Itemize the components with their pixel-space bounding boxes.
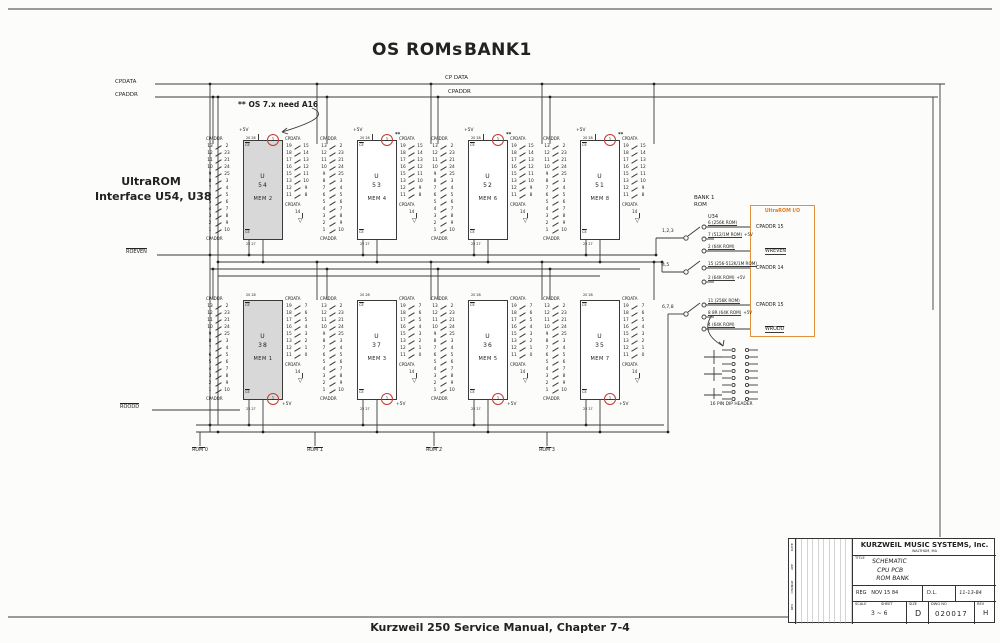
data-pin-row: 186 bbox=[621, 311, 658, 318]
data-pin-row: 1814 bbox=[509, 151, 546, 158]
bus-tap-mark bbox=[215, 375, 221, 380]
bus-tap-mark bbox=[294, 347, 300, 352]
cpdata-label-top: CPDATA bbox=[399, 296, 415, 301]
ultrarom-note-line2: Interface U54, U38 bbox=[95, 190, 207, 205]
vcc-label: +5V bbox=[619, 402, 628, 407]
bus-tap-mark bbox=[215, 173, 221, 178]
addr-pin-number: 7 bbox=[336, 368, 346, 372]
data-pin-number: 11 bbox=[284, 194, 294, 198]
junction-dot bbox=[487, 431, 490, 434]
data-pin-number: 16 bbox=[284, 166, 294, 170]
addr-pin-row: 132 bbox=[542, 144, 580, 151]
addr-pin-number: 6 bbox=[447, 361, 457, 365]
sheet-value: 3 ~ 6 bbox=[871, 610, 887, 617]
data-pin-number: 13 bbox=[398, 340, 408, 344]
addr-pin-number: 21 bbox=[559, 159, 569, 163]
data-bus-bit: 7 bbox=[415, 305, 425, 309]
bus-tap-mark bbox=[329, 361, 335, 366]
addr-pin-row: 83 bbox=[319, 339, 357, 346]
addr-bus-bit: 8 bbox=[430, 180, 440, 184]
drawn-date: NOV 15 84 bbox=[871, 590, 898, 596]
data-pin-row: 118 bbox=[284, 193, 321, 200]
addr-pin-number: 3 bbox=[336, 340, 346, 344]
bus-tap-mark bbox=[552, 201, 558, 206]
addr-pin-row: 1223 bbox=[319, 311, 357, 318]
addr-pin-number: 3 bbox=[447, 340, 457, 344]
data-bus-bit: 13 bbox=[301, 159, 311, 163]
addr-bus-bit: 3 bbox=[205, 215, 215, 219]
addr-pin-row: 1024 bbox=[430, 325, 468, 332]
bus-tap-mark bbox=[294, 173, 300, 178]
data-bus-bit: 4 bbox=[415, 326, 425, 330]
addr-pin-row: 29 bbox=[319, 381, 357, 388]
data-pin-row: 1310 bbox=[284, 179, 321, 186]
addr-bus-bit: 1 bbox=[319, 229, 329, 233]
cpdata-label-bottom: CPDATA bbox=[399, 362, 415, 367]
addr-bus-bit: 11 bbox=[542, 159, 552, 163]
bus-tap-mark bbox=[552, 222, 558, 227]
data-pin-number: 15 bbox=[284, 173, 294, 177]
chip-bottom-pin-numbers: 22 27 bbox=[471, 407, 481, 411]
chip-designator: U37MEM 3 bbox=[357, 332, 397, 364]
data-pin-row: 118 bbox=[509, 193, 546, 200]
chip-ref: U bbox=[580, 332, 620, 341]
cpdata-label-bottom: CPDATA bbox=[510, 362, 526, 367]
addr-bus-bit: 10 bbox=[542, 166, 552, 170]
data-bus-bit: 2 bbox=[301, 340, 311, 344]
addr-pin-row: 132 bbox=[542, 304, 580, 311]
data-bus-bit: 4 bbox=[526, 326, 536, 330]
bus-tap-mark bbox=[552, 215, 558, 220]
chip-designator: U51MEM 8 bbox=[580, 172, 620, 204]
ce-pin-label: CE bbox=[470, 303, 475, 307]
data-pin-number: 18 bbox=[398, 152, 408, 156]
addr-bus-bit: 10 bbox=[319, 166, 329, 170]
cpdata-label-top: CPDATA bbox=[399, 136, 415, 141]
data-pin-number: 11 bbox=[621, 354, 631, 358]
addr-bus-bit: 6 bbox=[319, 194, 329, 198]
chip-top-pin-numbers: 20 28 bbox=[583, 293, 593, 297]
chip-ref: U bbox=[580, 172, 620, 181]
chip-num: 54 bbox=[243, 181, 283, 190]
bus-tap-mark bbox=[552, 187, 558, 192]
addr-pin-column: 13212231121102492583746556473829110 bbox=[430, 144, 468, 235]
addr-pin-row: 925 bbox=[430, 332, 468, 339]
data-bus-bit: 7 bbox=[638, 305, 648, 309]
data-pin-number: 13 bbox=[621, 180, 631, 184]
bus-tap-mark bbox=[215, 368, 221, 373]
bus-tap-mark bbox=[631, 180, 637, 185]
bus-tap-mark bbox=[329, 180, 335, 185]
rom-chip-U53: CECEU53MEM 4CPADDRCPADDR1321223112110249… bbox=[319, 128, 435, 258]
drawing-title-line3: ROM BANK bbox=[876, 575, 910, 584]
bus-tap-mark bbox=[440, 361, 446, 366]
bus-tap-mark bbox=[552, 368, 558, 373]
ultrarom-io-title: UltraROM I/O bbox=[751, 209, 814, 214]
addr-pin-number: 6 bbox=[559, 201, 569, 205]
data-bus-bit: 8 bbox=[526, 194, 536, 198]
bus-tap-mark bbox=[294, 333, 300, 338]
addr-bus-bit: 9 bbox=[430, 333, 440, 337]
bus-tap-mark bbox=[552, 326, 558, 331]
addr-pin-number: 23 bbox=[559, 152, 569, 156]
ground-icon: ▽ bbox=[412, 377, 417, 384]
addr-bus-bit: 12 bbox=[319, 152, 329, 156]
data-pin-number: 13 bbox=[284, 340, 294, 344]
data-pin-row: 110 bbox=[509, 353, 546, 360]
data-bus-bit: 11 bbox=[415, 173, 425, 177]
data-pin-column: 191518141713161215111310129118 bbox=[509, 144, 546, 200]
bus-tap-mark bbox=[408, 159, 414, 164]
addr-pin-number: 5 bbox=[559, 354, 569, 358]
bus-tap-mark bbox=[552, 159, 558, 164]
bus-tap-mark bbox=[519, 145, 525, 150]
addr-pin-number: 4 bbox=[447, 187, 457, 191]
chip-mem: MEM 1 bbox=[243, 356, 283, 364]
addr-bus-bit: 10 bbox=[430, 326, 440, 330]
bus-tap-mark bbox=[329, 375, 335, 380]
addr-pin-row: 47 bbox=[542, 207, 580, 214]
addr-pin-row: 132 bbox=[430, 144, 468, 151]
addr-pin-number: 8 bbox=[447, 375, 457, 379]
bus-tap-mark bbox=[408, 340, 414, 345]
bus-tap-mark bbox=[440, 368, 446, 373]
addr-pin-row: 29 bbox=[430, 381, 468, 388]
addr-bus-bit: 8 bbox=[205, 340, 215, 344]
addr-bus-bit: 13 bbox=[430, 305, 440, 309]
junction-dot bbox=[217, 431, 220, 434]
wire bbox=[688, 303, 700, 312]
addr-bus-bit: 7 bbox=[319, 187, 329, 191]
chip-num: 35 bbox=[580, 341, 620, 350]
page-title-left: OS ROMs bbox=[372, 40, 463, 60]
data-bus-bit: 3 bbox=[638, 333, 648, 337]
wire bbox=[688, 261, 700, 270]
data-pin-row: 153 bbox=[284, 332, 321, 339]
data-bus-bit: 13 bbox=[526, 159, 536, 163]
dip-pin-circle bbox=[745, 390, 748, 393]
chip-designator: U38MEM 1 bbox=[243, 332, 283, 364]
addr-bus-bit: 4 bbox=[430, 368, 440, 372]
bus-tap-mark bbox=[440, 194, 446, 199]
addr-pin-number: 5 bbox=[222, 354, 232, 358]
bus-tap-mark bbox=[408, 312, 414, 317]
addr-pin-row: 1121 bbox=[205, 158, 243, 165]
data-pin-row: 1612 bbox=[621, 165, 658, 172]
company-location: WALTHAM, MA bbox=[853, 549, 996, 553]
addr-pin-row: 110 bbox=[430, 388, 468, 395]
addr-pin-number: 8 bbox=[559, 215, 569, 219]
addr-pin-number: 21 bbox=[559, 319, 569, 323]
bus-tap-mark bbox=[440, 312, 446, 317]
bus-tap-mark bbox=[294, 194, 300, 199]
bus-tap-mark bbox=[440, 152, 446, 157]
addr-bus-bit: 10 bbox=[319, 326, 329, 330]
addr-pin-row: 132 bbox=[319, 304, 357, 311]
data-bus-bit: 10 bbox=[526, 180, 536, 184]
data-pin-row: 153 bbox=[621, 332, 658, 339]
vcc-label: +5V bbox=[507, 402, 516, 407]
data-pin-number: 18 bbox=[284, 312, 294, 316]
bus-tap-mark bbox=[215, 208, 221, 213]
bus-tap-mark bbox=[215, 159, 221, 164]
bus-tap-mark bbox=[440, 166, 446, 171]
addr-bus-bit: 6 bbox=[542, 354, 552, 358]
data-pin-row: 197 bbox=[284, 304, 321, 311]
bus-tap-mark bbox=[519, 347, 525, 352]
bus-tap-mark bbox=[552, 145, 558, 150]
addr-bus-bit: 6 bbox=[542, 194, 552, 198]
bus-tap-mark bbox=[329, 305, 335, 310]
ultrarom-note-line1: UltraROM bbox=[95, 175, 207, 190]
data-bus-bit: 11 bbox=[638, 173, 648, 177]
dip-pin-circle bbox=[732, 397, 735, 400]
addr-pin-number: 25 bbox=[336, 333, 346, 337]
bank1-label-line1: BANK 1 bbox=[694, 195, 715, 201]
data-pin-number: 16 bbox=[284, 326, 294, 330]
jumper-option-label: 8 8R (64K ROM)+5V bbox=[708, 311, 752, 315]
addr-bus-bit: 1 bbox=[319, 389, 329, 393]
bus-tap-mark bbox=[294, 340, 300, 345]
vcc-label: +5V bbox=[396, 402, 405, 407]
bus-tap-mark bbox=[215, 326, 221, 331]
jumper-pins-label: 1,2,3 bbox=[662, 229, 674, 234]
data-bus-bit: 4 bbox=[301, 326, 311, 330]
switch-pin-circle bbox=[702, 249, 706, 253]
addr-pin-number: 8 bbox=[336, 375, 346, 379]
addr-bus-bit: 12 bbox=[205, 152, 215, 156]
data-pin-row: 153 bbox=[509, 332, 546, 339]
addr-pin-row: 38 bbox=[319, 374, 357, 381]
bus-tap-mark bbox=[631, 145, 637, 150]
data-pin-row: 1612 bbox=[284, 165, 321, 172]
jumper-option-text: 8 8R (64K ROM) bbox=[708, 310, 741, 316]
addr-pin-number: 4 bbox=[222, 187, 232, 191]
ultrarom-io-box: UltraROM I/O CPADDR 15WREVENCPADDR 14CPA… bbox=[750, 205, 815, 337]
drawn-by: REG bbox=[856, 590, 867, 596]
addr-bus-bit: 6 bbox=[430, 194, 440, 198]
addr-pin-column: 13212231121102492583746556473829110 bbox=[319, 304, 357, 395]
addr-pin-number: 10 bbox=[222, 229, 232, 233]
junction-dot bbox=[326, 96, 329, 99]
chip-ref: U bbox=[468, 332, 508, 341]
vpp-stars: ** bbox=[395, 132, 400, 138]
ground-icon: ▽ bbox=[635, 217, 640, 224]
data-bus-bit: 8 bbox=[415, 194, 425, 198]
rom-chip-U37: CECEU37MEM 3CPADDRCPADDR1321223112110249… bbox=[319, 288, 435, 418]
cpdata-label-top: CPDATA bbox=[622, 136, 638, 141]
bus-tap-mark bbox=[440, 201, 446, 206]
data-pin-row: 132 bbox=[509, 339, 546, 346]
cpaddr-label-top: CPADDR bbox=[206, 296, 223, 301]
addr-bus-bit: 4 bbox=[430, 208, 440, 212]
revision-strip-label: APP bbox=[790, 559, 794, 575]
chip-num: 53 bbox=[357, 181, 397, 190]
data-bus-bit: 15 bbox=[415, 145, 425, 149]
bus-tap-mark bbox=[440, 229, 446, 234]
bus-tap-mark bbox=[552, 354, 558, 359]
addr-bus-bit: 5 bbox=[430, 201, 440, 205]
data-pin-number: 19 bbox=[398, 305, 408, 309]
chip-ref: U bbox=[357, 332, 397, 341]
jumper-pins-label: 4,5 bbox=[662, 263, 669, 268]
addr-pin-row: 56 bbox=[430, 200, 468, 207]
vcc-label: +5V bbox=[464, 128, 473, 133]
rom-chip-U35: CECEU35MEM 7CPADDRCPADDR1321223112110249… bbox=[542, 288, 658, 418]
chip-num: 52 bbox=[468, 181, 508, 190]
data-pin-number: 18 bbox=[621, 312, 631, 316]
cpaddr-label-bottom: CPADDR bbox=[431, 396, 448, 401]
addr-bus-bit: 2 bbox=[319, 222, 329, 226]
data-bus-bit: 10 bbox=[415, 180, 425, 184]
addr-bus-bit: 5 bbox=[430, 361, 440, 365]
junction-dot bbox=[549, 96, 552, 99]
bus-tap-mark bbox=[408, 333, 414, 338]
bus-tap-mark bbox=[329, 319, 335, 324]
chip-num: 51 bbox=[580, 181, 620, 190]
addr-pin-row: 47 bbox=[205, 367, 243, 374]
data-pin-number: 19 bbox=[398, 145, 408, 149]
gnd-pin-number: 14 bbox=[632, 369, 637, 374]
ce-pin-label: CE bbox=[470, 143, 475, 147]
bus-tap-mark bbox=[294, 187, 300, 192]
addr-bus-bit: 6 bbox=[205, 354, 215, 358]
dip-pin-circle bbox=[732, 383, 735, 386]
addr-pin-row: 1121 bbox=[319, 318, 357, 325]
data-pin-number: 12 bbox=[284, 187, 294, 191]
addr-pin-row: 1024 bbox=[542, 325, 580, 332]
addr-bus-bit: 13 bbox=[205, 305, 215, 309]
addr-pin-number: 4 bbox=[336, 187, 346, 191]
bus-tap-mark bbox=[294, 159, 300, 164]
data-pin-number: 15 bbox=[398, 173, 408, 177]
dip-pin-circle bbox=[745, 348, 748, 351]
data-bus-bit: 5 bbox=[638, 319, 648, 323]
size-value: D bbox=[915, 609, 921, 618]
cpaddr-label-bottom: CPADDR bbox=[431, 236, 448, 241]
bus-tap-mark bbox=[329, 201, 335, 206]
vpp-highlight-circle: 1 bbox=[381, 134, 393, 146]
addr-pin-row: 1024 bbox=[542, 165, 580, 172]
data-bus-bit: 6 bbox=[415, 312, 425, 316]
bus-tap-mark bbox=[215, 340, 221, 345]
bus-tap-mark bbox=[408, 187, 414, 192]
junction-dot bbox=[437, 268, 440, 271]
addr-bus-bit: 13 bbox=[430, 145, 440, 149]
bank1-label-line2: ROM bbox=[694, 202, 707, 208]
addr-pin-row: 29 bbox=[205, 381, 243, 388]
bus-tap-mark bbox=[519, 166, 525, 171]
data-pin-number: 12 bbox=[284, 347, 294, 351]
addr-pin-row: 1024 bbox=[430, 165, 468, 172]
drawing-title-line2: CPU PCB bbox=[877, 567, 911, 576]
data-pin-row: 121 bbox=[621, 346, 658, 353]
vpp-stars: ** bbox=[618, 132, 623, 138]
cpaddr-label-bottom: CPADDR bbox=[320, 236, 337, 241]
addr-pin-number: 24 bbox=[447, 326, 457, 330]
page-caption: Kurzweil 250 Service Manual, Chapter 7-4 bbox=[0, 621, 1000, 634]
chip-top-pin-numbers: 20 28 bbox=[360, 293, 370, 297]
addr-pin-row: 29 bbox=[205, 221, 243, 228]
jumper-pins-label: 6,7,8 bbox=[662, 305, 674, 310]
ce-pin-label: CE bbox=[359, 143, 364, 147]
chip-bottom-pin-numbers: 22 27 bbox=[471, 242, 481, 246]
addr-pin-row: 110 bbox=[205, 228, 243, 235]
addr-pin-row: 110 bbox=[319, 228, 357, 235]
addr-pin-number: 9 bbox=[559, 222, 569, 226]
ce-pin-label: CE bbox=[582, 230, 587, 234]
junction-dot bbox=[316, 261, 319, 264]
addr-pin-number: 3 bbox=[447, 180, 457, 184]
data-bus-bit: 3 bbox=[415, 333, 425, 337]
addr-bus-bit: 9 bbox=[542, 333, 552, 337]
switch-pin-circle bbox=[702, 327, 706, 331]
bus-tap-mark bbox=[329, 368, 335, 373]
chip-top-pin-numbers: 20 28 bbox=[471, 136, 481, 140]
ultrarom-io-signal: CPADDR 15 bbox=[756, 303, 784, 308]
junction-dot bbox=[430, 83, 433, 86]
addr-pin-number: 8 bbox=[559, 375, 569, 379]
vpp-highlight-circle: 1 bbox=[492, 134, 504, 146]
addr-pin-row: 1223 bbox=[319, 151, 357, 158]
jumper-option-text: 11 (256K ROM) bbox=[708, 298, 740, 304]
addr-pin-row: 74 bbox=[205, 346, 243, 353]
chip-designator: U36MEM 5 bbox=[468, 332, 508, 364]
pullup-5v-label: +5V bbox=[744, 232, 753, 237]
data-bus-bit: 6 bbox=[638, 312, 648, 316]
bus-tap-mark bbox=[329, 194, 335, 199]
addr-pin-number: 25 bbox=[336, 173, 346, 177]
bus-tap-mark bbox=[329, 215, 335, 220]
addr-pin-number: 6 bbox=[336, 201, 346, 205]
bus-tap-mark bbox=[294, 166, 300, 171]
bus-tap-mark bbox=[294, 354, 300, 359]
bus-tap-mark bbox=[631, 305, 637, 310]
bus-tap-mark bbox=[440, 382, 446, 387]
data-pin-row: 197 bbox=[509, 304, 546, 311]
data-bus-bit: 1 bbox=[526, 347, 536, 351]
addr-bus-bit: 10 bbox=[430, 166, 440, 170]
data-bus-bit: 12 bbox=[526, 166, 536, 170]
data-bus-bit: 3 bbox=[526, 333, 536, 337]
bus-tap-mark bbox=[329, 333, 335, 338]
rom-chip-U36: CECEU36MEM 5CPADDRCPADDR1321223112110249… bbox=[430, 288, 546, 418]
data-bus-bit: 2 bbox=[526, 340, 536, 344]
data-pin-number: 16 bbox=[398, 166, 408, 170]
ce-pin-label: CE bbox=[582, 143, 587, 147]
vcc-stub bbox=[595, 134, 596, 140]
cpdata-label-top: CPDATA bbox=[622, 296, 638, 301]
bus-tap-mark bbox=[329, 152, 335, 157]
chip-mem: MEM 7 bbox=[580, 356, 620, 364]
bus-tap-mark bbox=[329, 145, 335, 150]
addr-pin-row: 38 bbox=[205, 214, 243, 221]
chip-top-pin-numbers: 20 28 bbox=[583, 136, 593, 140]
addr-pin-number: 5 bbox=[559, 194, 569, 198]
addr-pin-number: 3 bbox=[222, 340, 232, 344]
rom-bus-label: ROM 1 bbox=[301, 448, 329, 453]
chip-ref: U bbox=[243, 172, 283, 181]
addr-pin-number: 24 bbox=[336, 166, 346, 170]
switch-pin-circle bbox=[702, 237, 706, 241]
ce-pin-label: CE bbox=[359, 230, 364, 234]
data-pin-number: 18 bbox=[398, 312, 408, 316]
addr-pin-column: 13212231121102492583746556473829110 bbox=[542, 304, 580, 395]
bus-tap-mark bbox=[440, 389, 446, 394]
jumper-option-label: 2 (64K ROM)+5V bbox=[708, 276, 745, 280]
addr-bus-bit: 2 bbox=[205, 382, 215, 386]
addr-pin-row: 56 bbox=[205, 360, 243, 367]
